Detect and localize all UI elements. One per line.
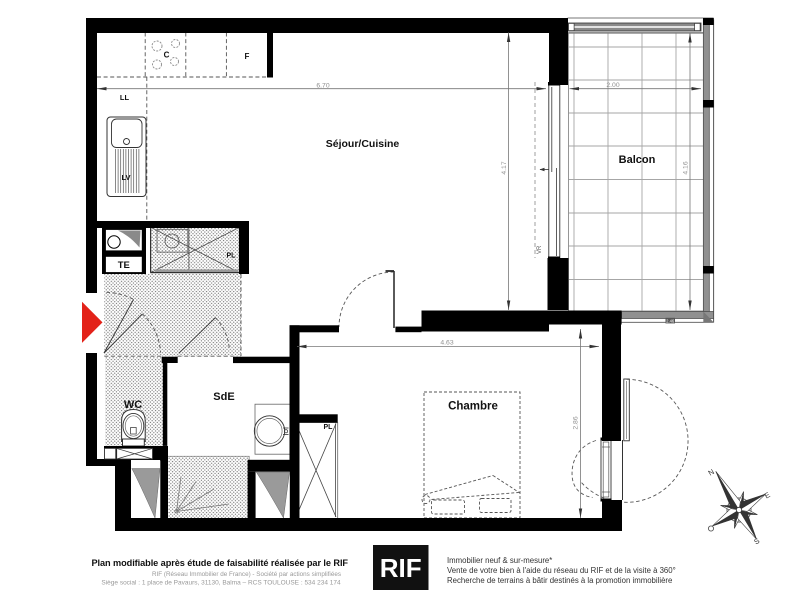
svg-text:RIF (Réseau Immobilier de Fran: RIF (Réseau Immobilier de France) - Soci… [152,571,341,578]
svg-text:Séjour/Cuisine: Séjour/Cuisine [326,138,400,150]
svg-text:PL: PL [227,253,237,260]
svg-text:2.46: 2.46 [666,318,675,323]
svg-text:N: N [707,467,716,478]
svg-text:PL: PL [324,424,334,431]
svg-text:2.86: 2.86 [573,416,580,429]
svg-text:C: C [164,51,170,60]
svg-text:6.70: 6.70 [316,83,329,90]
svg-text:F: F [245,52,250,61]
svg-text:VR: VR [537,245,543,254]
svg-text:Vente de votre bien à l'aide d: Vente de votre bien à l'aide du réseau d… [447,566,676,575]
svg-text:Immobilier neuf & sur-mesure*: Immobilier neuf & sur-mesure* [447,556,552,565]
svg-text:Siège social : 1 place de Pava: Siège social : 1 place de Pavaurs, 31130… [101,580,341,587]
svg-text:4.17: 4.17 [501,161,508,174]
svg-text:LL: LL [120,93,130,102]
svg-text:RIF: RIF [380,553,422,583]
svg-text:4.16: 4.16 [683,161,690,174]
svg-text:TE: TE [118,260,130,271]
svg-text:2.00: 2.00 [606,82,619,89]
svg-text:Chambre: Chambre [448,401,498,413]
svg-text:LV: LV [121,173,130,182]
svg-text:SdE: SdE [213,391,234,403]
svg-text:Plan modifiable après étude de: Plan modifiable après étude de faisabili… [92,558,349,568]
svg-text:S: S [752,536,761,546]
svg-text:4.63: 4.63 [440,340,453,347]
svg-text:Balcon: Balcon [619,154,656,166]
svg-text:Recherche de terrains à bâtir: Recherche de terrains à bâtir destinés à… [447,576,672,585]
svg-text:E: E [763,490,772,500]
